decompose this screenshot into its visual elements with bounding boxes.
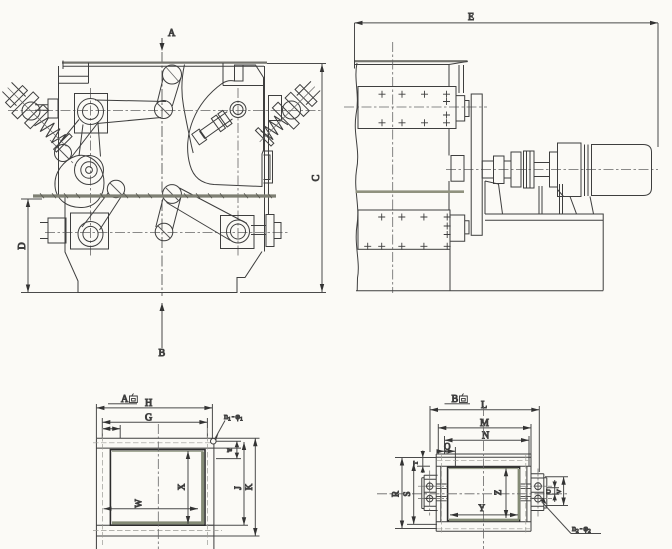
svg-text:Y: Y [479,503,486,513]
svg-text:T: T [413,461,420,465]
svg-text:Z: Z [493,490,503,496]
svg-text:A: A [168,28,176,39]
svg-text:L: L [481,400,487,411]
svg-text:C: C [311,174,322,181]
svg-text:S: S [402,491,412,496]
svg-text:M: M [480,418,489,429]
svg-text:R: R [391,491,401,497]
svg-text:W: W [134,499,144,508]
svg-text:X: X [177,483,187,490]
svg-text:H: H [145,398,152,409]
svg-text:K: K [244,483,254,490]
svg-text:U: U [546,489,553,494]
svg-text:n2-φ2: n2-φ2 [572,524,591,535]
svg-text:n1-φ1: n1-φ1 [224,412,243,423]
svg-text:I≈: I≈ [227,448,232,454]
svg-text:V: V [556,489,563,494]
svg-text:J: J [233,486,243,490]
svg-text:E: E [468,12,474,23]
svg-text:G: G [145,413,152,424]
svg-text:D: D [17,242,28,249]
svg-text:N: N [482,431,489,442]
svg-text:B: B [159,348,166,359]
